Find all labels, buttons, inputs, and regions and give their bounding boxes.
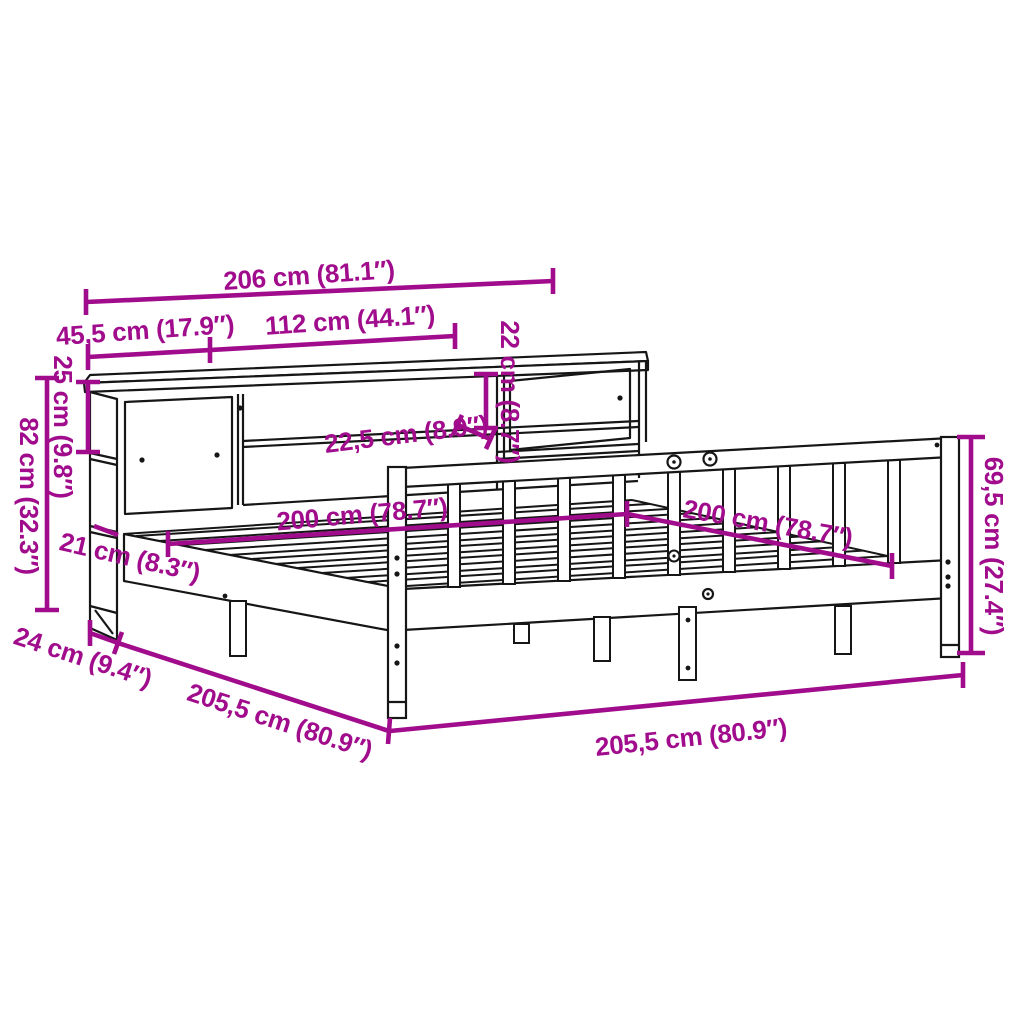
dim-shelf-opening-height-label: 22 cm (8.7″) — [497, 320, 523, 463]
dim-footboard-height-label: 69,5 cm (27.4″) — [981, 457, 1007, 636]
bed-line-drawing — [0, 0, 1024, 1024]
product-dimension-diagram: 206 cm (81.1″) 45,5 cm (17.9″) 112 cm (4… — [0, 0, 1024, 1024]
dim-headboard-height-label: 82 cm (32.3″) — [16, 417, 42, 574]
dim-top-compartment-height-label: 25 cm (9.8″) — [50, 355, 76, 498]
